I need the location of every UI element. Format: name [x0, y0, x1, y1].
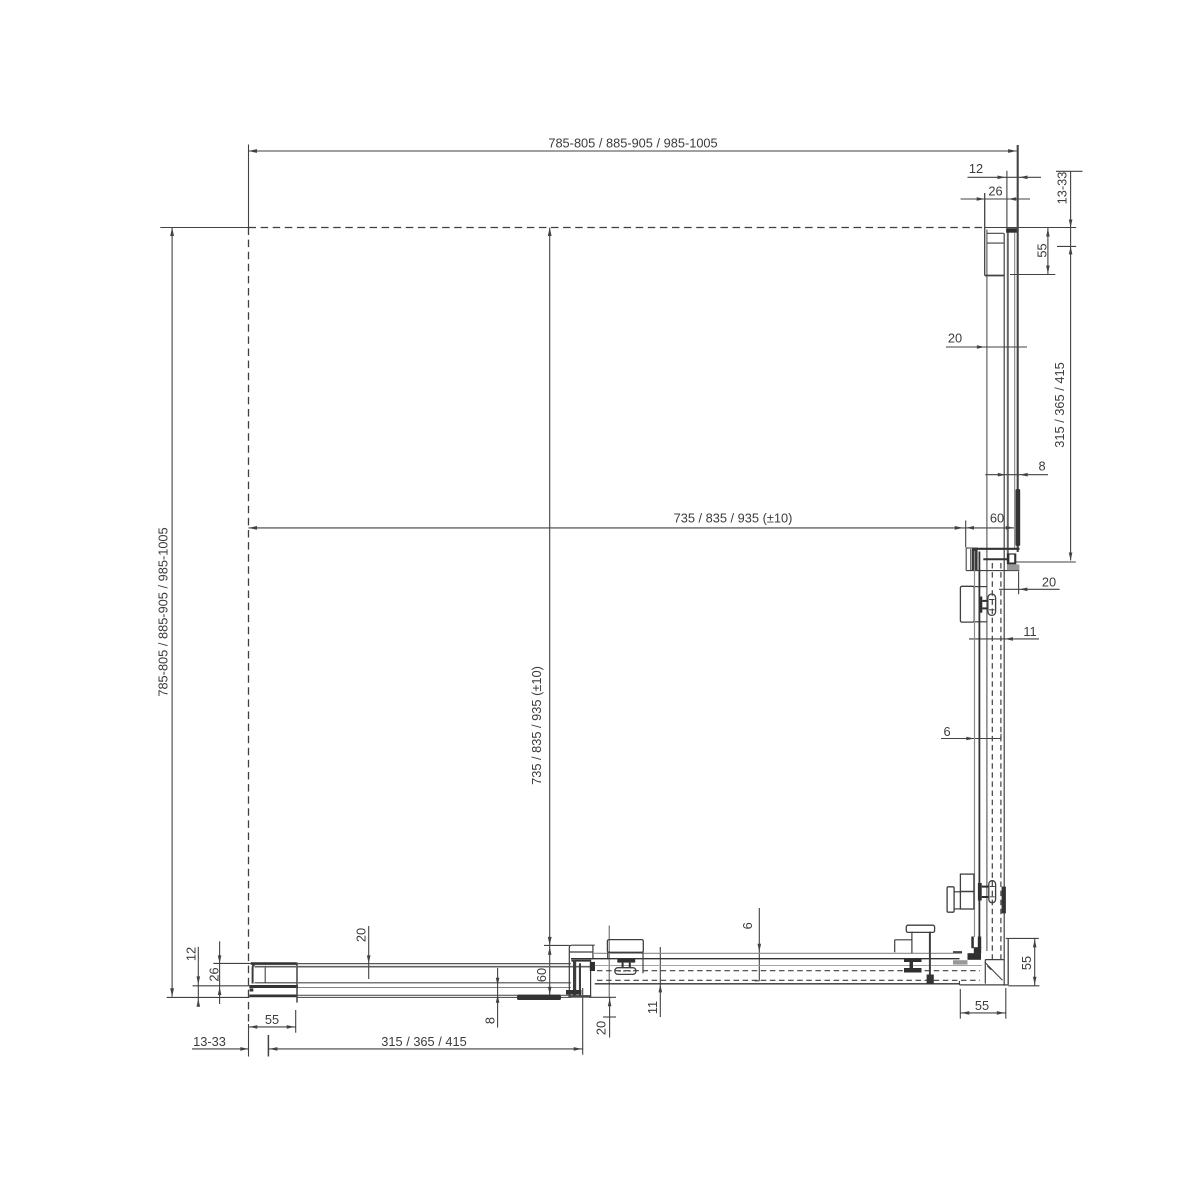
svg-text:55: 55 [1019, 956, 1034, 970]
svg-text:13-33: 13-33 [193, 1034, 226, 1049]
svg-text:13-33: 13-33 [1054, 172, 1069, 205]
svg-text:60: 60 [534, 968, 549, 982]
svg-text:8: 8 [1038, 458, 1045, 473]
svg-text:6: 6 [740, 922, 755, 929]
svg-text:20: 20 [948, 330, 962, 345]
svg-text:785-805 / 885-905 / 985-1005: 785-805 / 885-905 / 985-1005 [156, 527, 171, 696]
svg-text:20: 20 [1042, 574, 1056, 589]
svg-text:55: 55 [1034, 243, 1049, 257]
svg-text:315 / 365 / 415: 315 / 365 / 415 [1052, 362, 1067, 447]
svg-text:60: 60 [990, 510, 1004, 525]
svg-text:735 / 835 / 935 (±10): 735 / 835 / 935 (±10) [529, 666, 544, 785]
svg-text:11: 11 [645, 1001, 660, 1014]
svg-text:735 / 835 / 935 (±10): 735 / 835 / 935 (±10) [674, 511, 793, 526]
svg-text:26: 26 [206, 967, 221, 981]
svg-text:8: 8 [482, 1017, 497, 1024]
svg-text:20: 20 [354, 928, 369, 942]
svg-text:315 / 365 / 415: 315 / 365 / 415 [381, 1034, 466, 1049]
svg-text:20: 20 [593, 1021, 608, 1035]
svg-text:11: 11 [1023, 624, 1036, 639]
svg-text:26: 26 [988, 183, 1002, 198]
svg-text:55: 55 [265, 1012, 279, 1027]
svg-text:6: 6 [943, 724, 950, 739]
svg-text:12: 12 [969, 161, 983, 176]
svg-text:785-805 / 885-905 / 985-1005: 785-805 / 885-905 / 985-1005 [548, 136, 717, 151]
svg-text:12: 12 [183, 947, 198, 961]
svg-text:55: 55 [975, 998, 989, 1013]
